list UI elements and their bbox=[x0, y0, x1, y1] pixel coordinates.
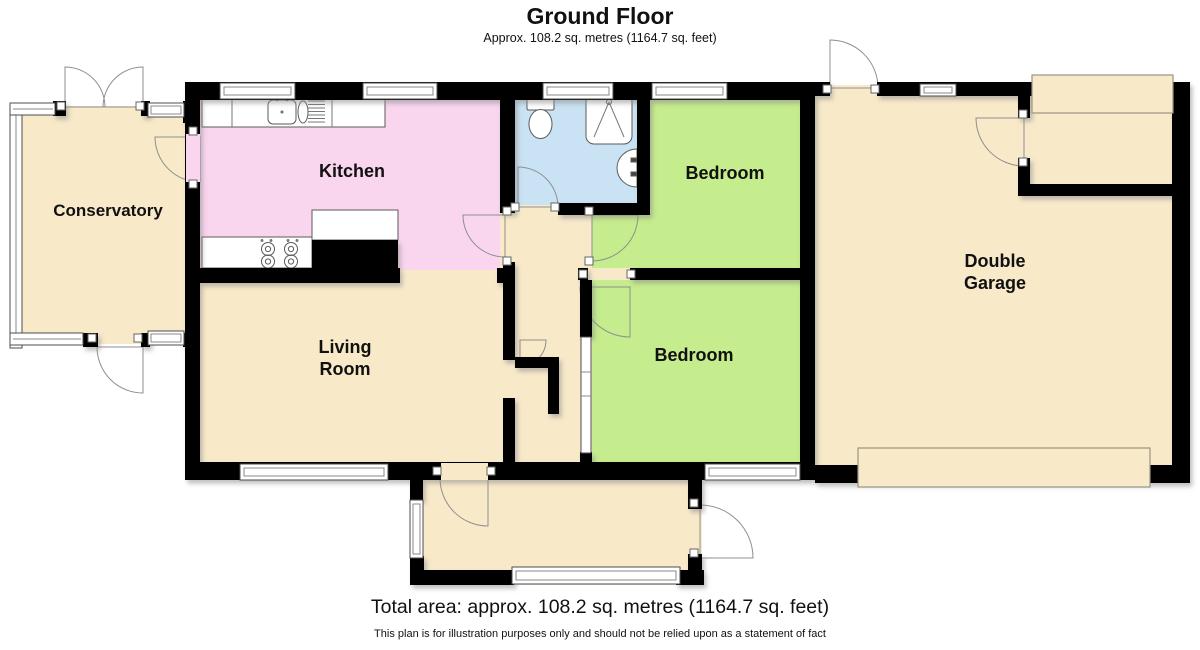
window-bedroom-bottom bbox=[705, 464, 800, 480]
wall-bedrooms-b bbox=[630, 268, 802, 280]
wall-porch-bottom-a bbox=[410, 570, 514, 585]
floor-plan-drawing: Conservatory Kitchen Living Room Bedroom… bbox=[0, 0, 1200, 650]
garage-label-line2: Garage bbox=[964, 273, 1026, 293]
window-conservatory-bottom-right bbox=[148, 331, 184, 345]
partition-bedroom-bottom bbox=[581, 337, 591, 453]
disclaimer-text: This plan is for illustration purposes o… bbox=[0, 628, 1200, 640]
door-jamb bbox=[189, 127, 197, 135]
wall-bathroom-bottom bbox=[558, 203, 650, 215]
total-area-text: Total area: approx. 108.2 sq. metres (11… bbox=[0, 596, 1200, 619]
kitchen-sink-icon bbox=[202, 97, 385, 127]
wall-house-right bbox=[800, 82, 815, 480]
bedroom-bottom-label: Bedroom bbox=[654, 345, 733, 365]
floor-plan-page: Ground Floor Approx. 108.2 sq. metres (1… bbox=[0, 0, 1200, 650]
kitchen-peninsula-unit bbox=[312, 210, 398, 240]
garage-door-front bbox=[858, 448, 1150, 487]
door-jamb bbox=[503, 257, 511, 265]
door-jamb bbox=[551, 203, 559, 211]
window-kitchen-2 bbox=[363, 83, 437, 99]
kitchen-black-unit bbox=[312, 240, 398, 270]
garage-door-rear bbox=[1032, 75, 1173, 113]
window-conservatory-bottom bbox=[10, 333, 83, 345]
bedroom-bottom-floor bbox=[592, 280, 800, 462]
toilet-icon bbox=[527, 96, 554, 139]
door-jamb bbox=[1019, 158, 1027, 166]
window-conservatory-left bbox=[10, 103, 22, 348]
wall-kitchen-bathroom bbox=[500, 82, 515, 213]
wall-bedroom-bottom-left-b bbox=[580, 452, 592, 464]
window-living-room bbox=[240, 464, 388, 480]
door-jamb bbox=[823, 85, 831, 93]
door-jamb bbox=[433, 467, 441, 475]
door-jamb bbox=[585, 257, 593, 265]
conservatory-label: Conservatory bbox=[53, 201, 163, 220]
door-jamb bbox=[871, 85, 879, 93]
living-room-label-line1: Living bbox=[319, 337, 372, 357]
door-jamb bbox=[511, 203, 519, 211]
garage-back-door-arc bbox=[830, 40, 878, 88]
door-jamb bbox=[585, 207, 593, 215]
door-jamb bbox=[690, 549, 698, 557]
window-bedroom-top bbox=[652, 83, 727, 99]
kitchen-label: Kitchen bbox=[319, 161, 385, 181]
conservatory-double-door-left-arc bbox=[65, 67, 105, 107]
garage-label-line1: Double bbox=[965, 251, 1026, 271]
opening-living-porch bbox=[441, 463, 488, 480]
door-jamb bbox=[487, 467, 495, 475]
wall-living-hall-b bbox=[503, 398, 515, 462]
wall-living-hall-a bbox=[503, 262, 515, 360]
door-jamb bbox=[57, 102, 65, 110]
window-garage-vent bbox=[920, 84, 956, 96]
living-room-label-line2: Room bbox=[320, 359, 371, 379]
front-door-arc bbox=[700, 505, 753, 558]
wall-cupboard-b bbox=[548, 357, 559, 414]
window-kitchen-1 bbox=[220, 83, 295, 99]
door-jamb bbox=[690, 499, 698, 507]
opening-conservatory-kitchen bbox=[186, 134, 200, 182]
door-jamb bbox=[627, 270, 635, 278]
wall-bedroom-bottom-left-a bbox=[580, 280, 592, 337]
door-jamb bbox=[1019, 110, 1027, 118]
door-jamb bbox=[136, 102, 144, 110]
hob-icon bbox=[202, 237, 312, 268]
conservatory-double-door-right-arc bbox=[103, 67, 143, 107]
door-jamb bbox=[88, 334, 96, 342]
door-jamb bbox=[189, 180, 197, 188]
door-jamb bbox=[579, 270, 587, 278]
wall-conservatory-corner-bottom bbox=[183, 333, 200, 347]
door-jamb bbox=[503, 207, 511, 215]
window-conservatory-top bbox=[10, 103, 55, 115]
window-bathroom bbox=[543, 83, 613, 99]
wall-bathroom-bedroom bbox=[637, 82, 650, 215]
wall-garage-store-c bbox=[1018, 184, 1175, 196]
bedroom-top-label: Bedroom bbox=[685, 163, 764, 183]
conservatory-garden-door-arc bbox=[97, 347, 143, 393]
window-porch-front bbox=[512, 567, 680, 584]
wall-conservatory-corner-top bbox=[183, 101, 200, 123]
door-jamb bbox=[134, 334, 142, 342]
wall-porch-left-a bbox=[410, 472, 423, 500]
window-conservatory-top-right bbox=[148, 103, 184, 117]
conservatory-floor bbox=[16, 106, 185, 344]
window-porch-side bbox=[410, 500, 423, 558]
wall-kitchen-living bbox=[200, 268, 400, 283]
shower-icon bbox=[586, 94, 632, 144]
wall-garage-right bbox=[1172, 82, 1190, 483]
